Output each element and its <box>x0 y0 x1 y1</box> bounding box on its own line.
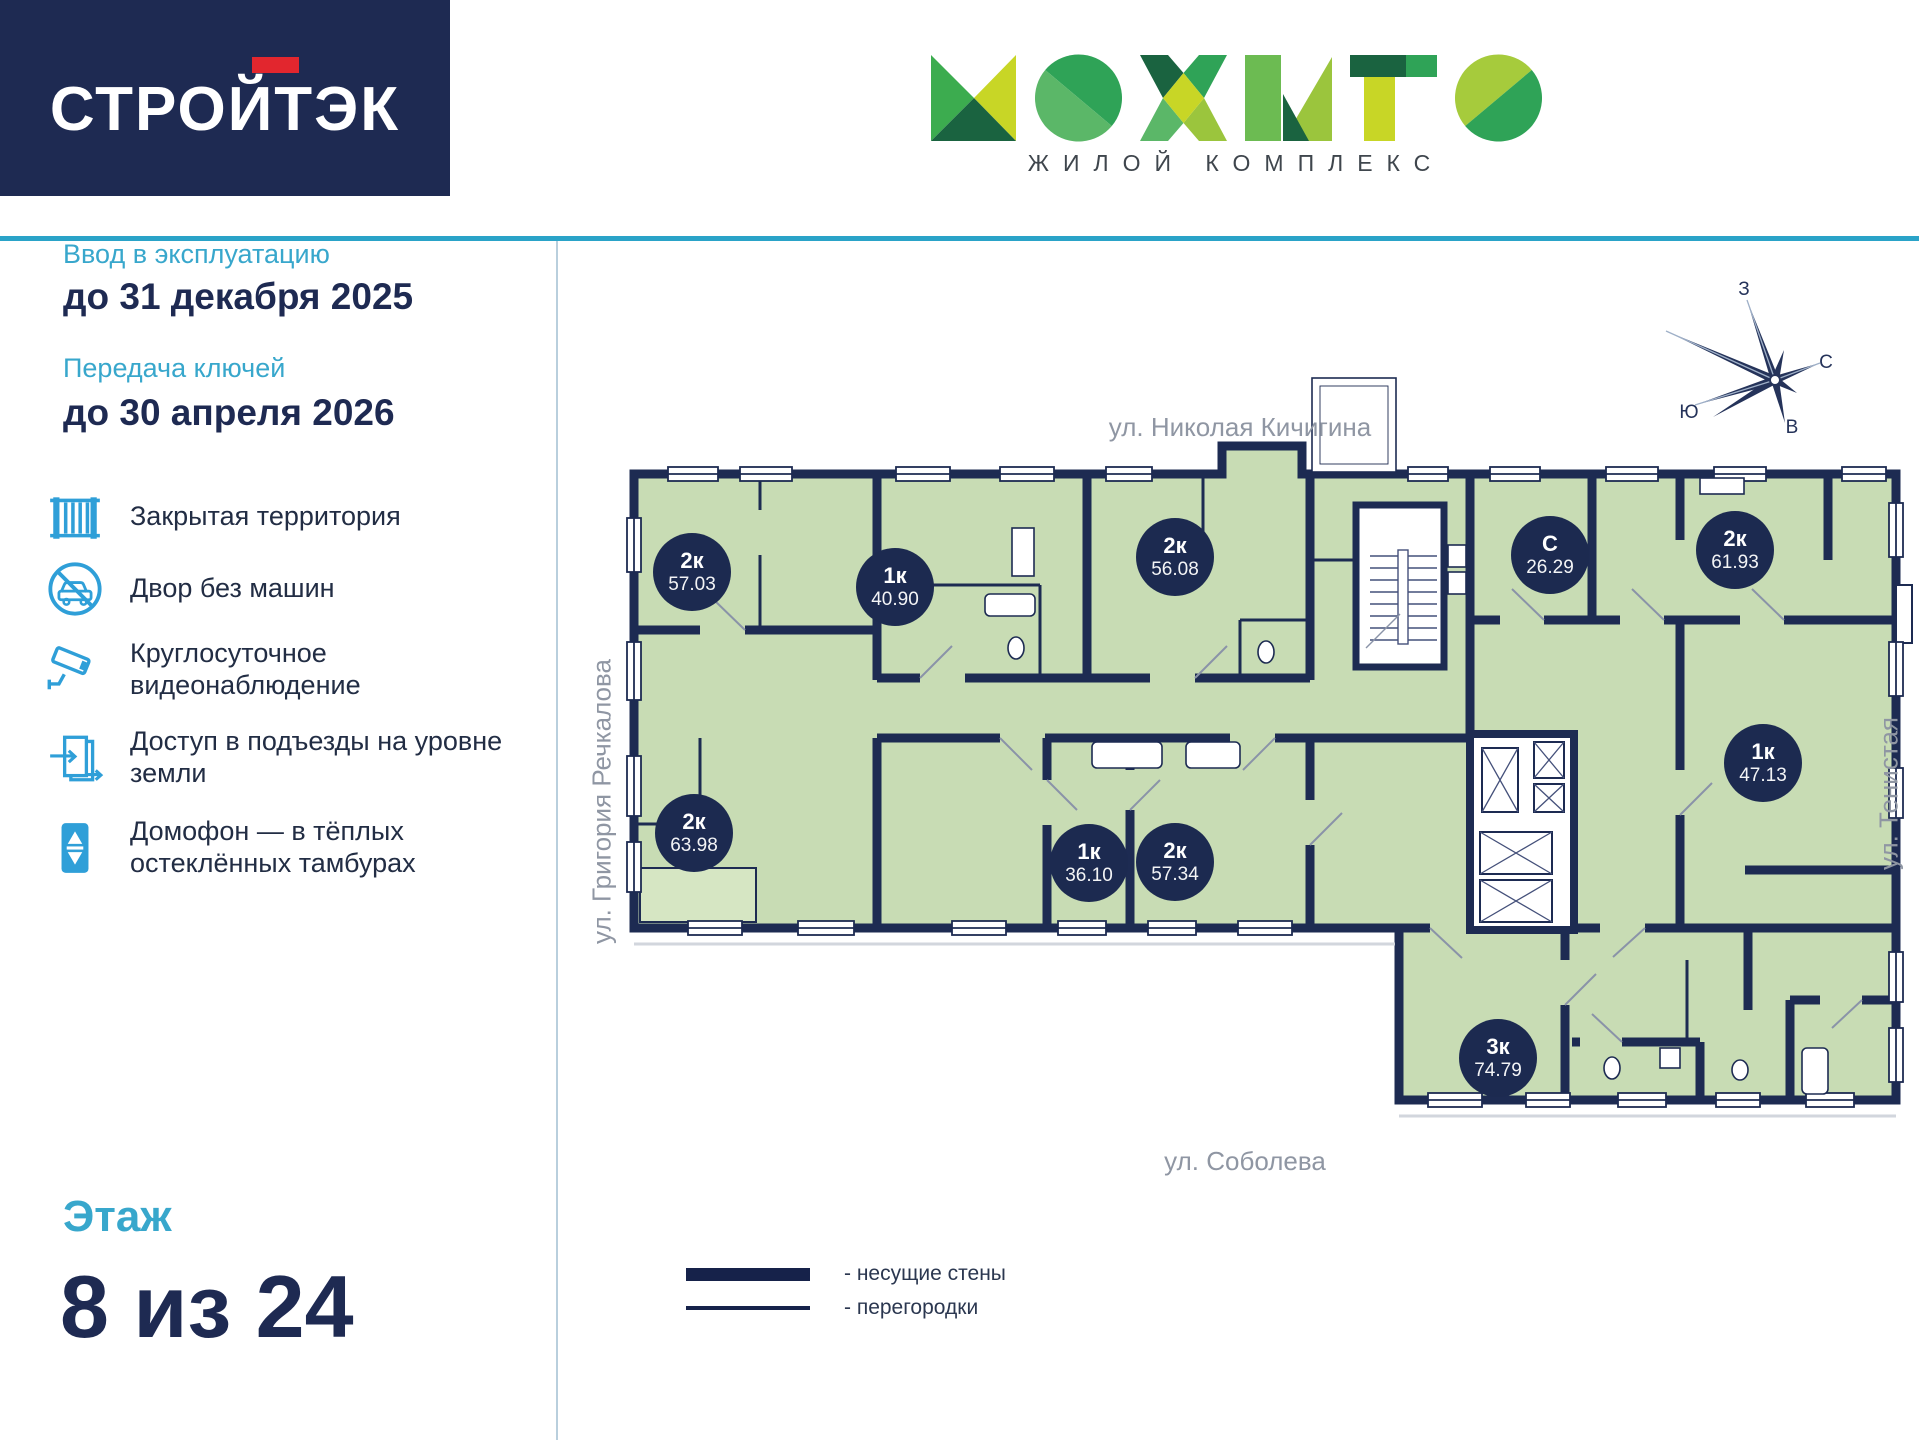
apartment-area: 74.79 <box>1474 1060 1522 1081</box>
apartment-area: 57.03 <box>668 574 716 595</box>
apartment-badge[interactable]: 1к 36.10 <box>1050 824 1128 902</box>
street-label-bottom: ул. Соболева <box>1135 1146 1355 1177</box>
compass-west: З <box>1738 279 1749 300</box>
apartment-badge[interactable]: 2к 63.98 <box>655 794 733 872</box>
apartment-badge[interactable]: 2к 56.08 <box>1136 518 1214 596</box>
compass-north: С <box>1819 352 1833 373</box>
stairwell <box>1356 505 1444 667</box>
apartment-type: 2к <box>680 549 703 574</box>
legend-label: - несущие стены <box>844 1262 1006 1286</box>
floor-value: 8 из 24 <box>60 1256 354 1358</box>
intercom-icon <box>44 817 106 879</box>
apartment-type: 2к <box>1163 534 1186 559</box>
apartment-type: С <box>1542 532 1558 557</box>
legend-partitions: - перегородки <box>686 1296 1006 1320</box>
compass-rose: З С Ю В <box>1630 265 1910 455</box>
legend-label: - перегородки <box>844 1296 978 1320</box>
street-label-left: ул. Григория Речкалова <box>587 637 618 967</box>
apartment-type: 1к <box>1751 740 1774 765</box>
balcony <box>640 868 756 922</box>
apartment-badge[interactable]: 2к 57.03 <box>653 533 731 611</box>
apartment-type: 2к <box>1163 839 1186 864</box>
amenity-ground-level-access: Доступ в подъезды на уровне земли <box>44 726 514 790</box>
floor-plan <box>600 350 1919 1230</box>
complex-type-subtitle: ЖИЛОЙ КОМПЛЕКС <box>930 150 1542 177</box>
compass-south: Ю <box>1679 402 1698 423</box>
legend-bearing-walls: - несущие стены <box>686 1262 1006 1286</box>
amenity-cctv: Круглосуточное видеонаблюдение <box>44 638 514 702</box>
elevator-core <box>1470 734 1574 930</box>
apartment-badge[interactable]: С 26.29 <box>1511 516 1589 594</box>
fence-icon <box>44 486 106 548</box>
compass-east: В <box>1786 417 1799 438</box>
apartment-badge[interactable]: 1к 40.90 <box>856 548 934 626</box>
apartment-area: 26.29 <box>1526 557 1574 578</box>
amenity-label: Доступ в подъезды на уровне земли <box>130 726 514 790</box>
apartment-area: 47.13 <box>1739 765 1787 786</box>
apartment-type: 1к <box>1077 840 1100 865</box>
apartment-type: 3к <box>1486 1035 1509 1060</box>
keys-date: до 30 апреля 2026 <box>63 392 395 434</box>
mojito-logo <box>930 52 1542 149</box>
apartment-type: 2к <box>1723 527 1746 552</box>
logo-red-accent <box>252 57 299 73</box>
legend-thin-line <box>686 1306 810 1310</box>
apartment-area: 56.08 <box>1151 559 1199 580</box>
apartment-area: 57.34 <box>1151 864 1199 885</box>
street-label-top: ул. Николая Кичигина <box>1090 412 1390 443</box>
apartment-badge[interactable]: 3к 74.79 <box>1459 1019 1537 1097</box>
amenity-no-cars: Двор без машин <box>44 558 514 620</box>
street-label-right: ул. Тенистая <box>1874 679 1905 909</box>
developer-logo: СТРОЙТЭК <box>0 0 450 196</box>
apartment-area: 63.98 <box>670 835 718 856</box>
apartment-area: 36.10 <box>1065 865 1113 886</box>
amenity-label: Домофон — в тёплых остеклённых тамбурах <box>130 816 514 880</box>
sidebar-divider-line <box>556 241 558 1440</box>
developer-name: СТРОЙТЭК <box>50 74 400 145</box>
apartment-badge[interactable]: 2к 57.34 <box>1136 823 1214 901</box>
amenity-label: Круглосуточное видеонаблюдение <box>130 638 514 702</box>
amenity-intercom: Домофон — в тёплых остеклённых тамбурах <box>44 816 514 880</box>
legend-thick-line <box>686 1268 810 1281</box>
commissioning-label: Ввод в эксплуатацию <box>63 239 330 270</box>
apartment-type: 1к <box>883 564 906 589</box>
amenity-label: Закрытая территория <box>130 501 401 533</box>
plan-legend: - несущие стены - перегородки <box>686 1262 1006 1330</box>
floor-label: Этаж <box>63 1192 172 1242</box>
apartment-badge[interactable]: 1к 47.13 <box>1724 724 1802 802</box>
amenity-closed-territory: Закрытая территория <box>44 486 514 548</box>
apartment-type: 2к <box>682 810 705 835</box>
door-access-icon <box>44 727 106 789</box>
mojito-logo-letters <box>930 52 1542 144</box>
commissioning-date: до 31 декабря 2025 <box>63 276 413 318</box>
no-car-icon <box>44 558 106 620</box>
apartment-area: 61.93 <box>1711 552 1759 573</box>
amenity-label: Двор без машин <box>130 573 335 605</box>
cctv-icon <box>44 639 106 701</box>
apartment-badge[interactable]: 2к 61.93 <box>1696 511 1774 589</box>
keys-label: Передача ключей <box>63 353 285 384</box>
apartment-area: 40.90 <box>871 589 919 610</box>
